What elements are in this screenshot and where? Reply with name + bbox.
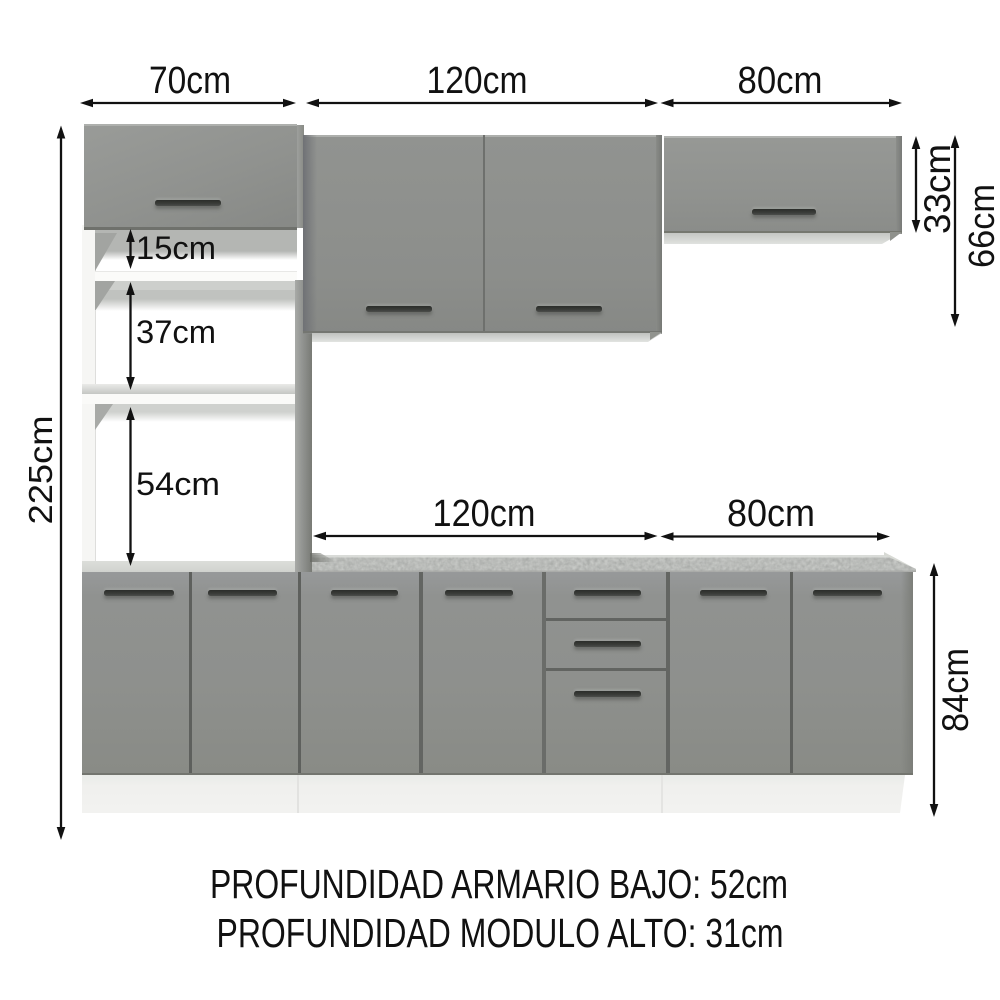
svg-text:70cm: 70cm [149,60,231,102]
svg-text:84cm: 84cm [935,648,976,732]
svg-text:54cm: 54cm [136,466,220,502]
svg-text:225cm: 225cm [22,416,59,525]
svg-text:PROFUNDIDAD ARMARIO BAJO: 52cm: PROFUNDIDAD ARMARIO BAJO: 52cm [210,861,788,907]
svg-text:66cm: 66cm [961,184,1000,268]
svg-text:80cm: 80cm [727,493,815,535]
svg-text:PROFUNDIDAD MODULO ALTO: 31cm: PROFUNDIDAD MODULO ALTO: 31cm [217,910,784,956]
svg-text:15cm: 15cm [136,230,216,266]
svg-text:80cm: 80cm [738,60,823,102]
svg-text:120cm: 120cm [427,60,528,102]
svg-text:37cm: 37cm [136,314,216,350]
svg-text:120cm: 120cm [433,493,536,535]
svg-text:33cm: 33cm [917,144,958,234]
